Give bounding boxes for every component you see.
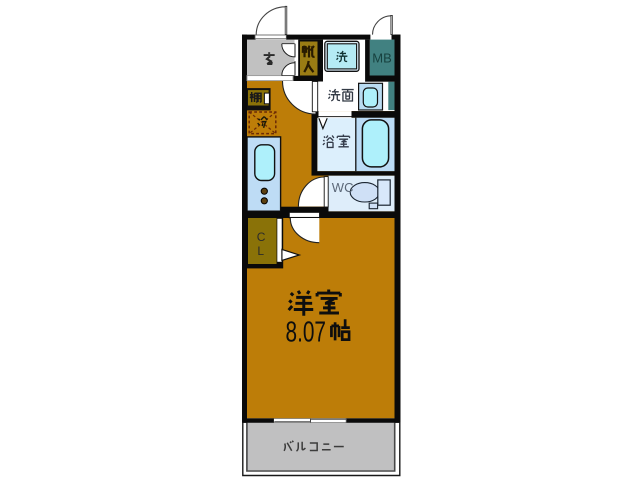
svg-text:C: C — [257, 230, 266, 244]
svg-text:WC: WC — [332, 180, 354, 195]
svg-text:8.07: 8.07 — [286, 316, 326, 348]
svg-text:L: L — [257, 244, 264, 258]
svg-text:MB: MB — [372, 51, 392, 66]
